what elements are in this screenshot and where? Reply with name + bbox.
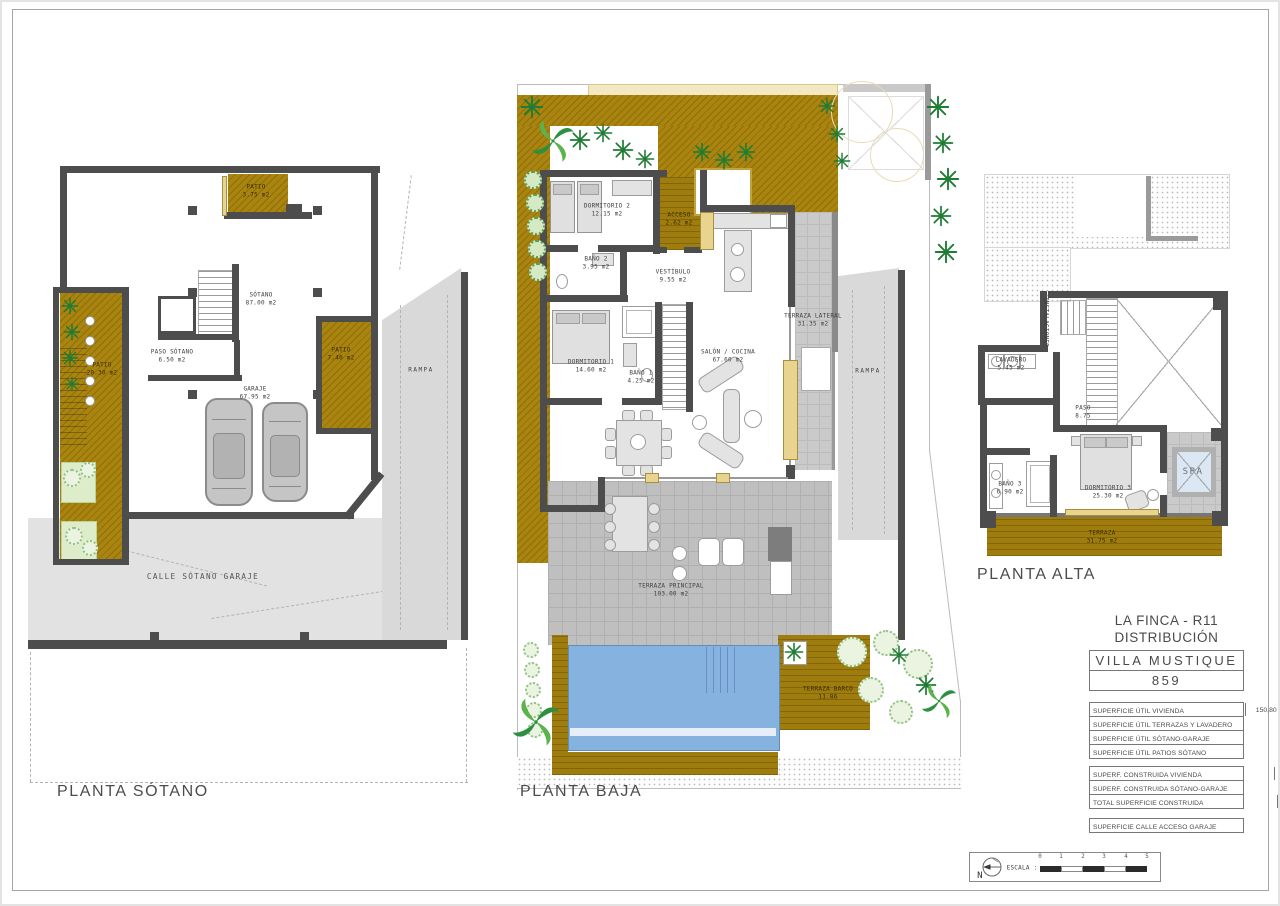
scale-segment [1126,866,1147,872]
scale-segment [1040,866,1061,872]
plant-pot-icon [85,336,95,346]
palm-tree-icon [612,139,634,161]
wall [788,205,795,307]
pouf-icon [672,546,687,561]
kitchen-island-icon [724,230,752,292]
wall [978,345,985,405]
bush-icon [529,263,547,281]
palm-tree-icon [736,142,756,162]
wall [980,405,987,517]
nightstand-icon [1071,436,1081,446]
bush-icon [837,637,867,667]
pool-deck [552,752,778,775]
palm-tree-icon [63,323,81,341]
bed-icon [552,310,610,364]
wall [148,375,242,381]
stairs [1060,300,1086,335]
chair-icon [604,539,616,551]
wall [980,448,1030,455]
room-label-patio-left: PATIO20.30 m2 [87,361,118,377]
palm-tree-icon [520,95,544,119]
sink-icon [991,470,1001,480]
row-value: 150,80 [1256,706,1277,713]
palm-tree-icon [784,642,804,662]
chair-icon [648,503,660,515]
area-table-row: SUPERFICIE ÚTIL PATIOS SÓTANO31,65 [1089,744,1244,759]
bathtub-inner-icon [1030,465,1050,503]
label-calle-sotano-garaje: CALLE SÓTANO GARAJE [147,572,259,582]
pouf-icon [672,566,687,581]
scale-tick: 2 [1081,853,1084,859]
room-label-terraza-barco: TERRAZA BARCO11.86 [803,685,853,701]
wall [700,205,795,212]
room-label-sotano: SÓTANO87.00 m2 [246,291,277,307]
pinwheel-tree-icon [920,682,958,720]
wall [1146,236,1198,241]
window [1065,509,1159,516]
palm-tree-icon [64,376,80,392]
street-boundary-wall [28,640,447,649]
palm-tree-icon [926,95,950,119]
pillar [1213,291,1228,310]
plant-pot-icon [85,376,95,386]
window [222,176,227,216]
wall [540,398,602,405]
wall [540,170,667,177]
plan-title-alta: PLANTA ALTA [977,566,1096,584]
room-label-spa: SPA [1183,466,1204,478]
cooktop-icon [730,267,745,282]
palm-tree-icon [930,205,952,227]
wall [53,287,129,293]
chair-icon [640,410,653,421]
palm-tree-icon [692,142,712,162]
stairs [662,304,688,410]
wall [655,302,662,405]
wall [316,316,322,434]
room-label-vestibulo: VESTÍBULO9.55 m2 [656,268,691,284]
wall [978,345,1048,352]
window [783,360,798,460]
bush-icon [524,662,540,678]
palm-tree-icon [889,645,909,665]
room-label-dormitorio3: DORMITORIO 325.30 m2 [1085,484,1131,500]
pillar [1211,428,1228,441]
outdoor-table-icon [612,496,648,552]
double-height-void [1116,298,1221,425]
stairs [1086,298,1118,430]
chair-icon [605,428,616,441]
wall [286,204,302,213]
bush-icon [524,171,542,189]
wall [232,264,239,342]
chair-icon [648,521,660,533]
wall [686,302,693,412]
wall [1221,291,1228,517]
bush-icon [523,642,539,658]
lounger-icon [722,538,744,566]
wall [1160,495,1167,517]
bed-icon [550,181,575,233]
room-label-dormitorio1: DORMITORIO 114.60 m2 [568,358,614,374]
area-table-row: SUPERFICIE CALLE ACCESO GARAJE77,96 [1089,818,1244,833]
plant-pot-icon [85,316,95,326]
palm-tree-icon [932,132,954,154]
stairs [198,270,234,336]
pillar [300,632,309,641]
scale-tick: 0 [1038,853,1041,859]
wall [316,428,378,434]
sink-icon [731,243,744,256]
pillar [1212,511,1228,526]
pool-steps [706,647,736,693]
title-block: LA FINCA - R11 DISTRIBUCIÓN VILLA MUSTIQ… [1089,612,1244,833]
row-label: SUPERFICIE ÚTIL VIVIENDA [1093,707,1184,714]
shower-tray-icon [626,310,652,334]
car-icon [262,402,308,502]
scale-tick: 5 [1145,853,1148,859]
room-label-paso-sotano: PASO SÓTANO6.50 m2 [151,348,193,364]
villa-name: VILLA MUSTIQUE [1089,650,1244,671]
room-label-garaje: GARAJE67.95 m2 [240,385,271,401]
pillar [188,288,197,297]
skylight [801,347,831,391]
palm-tree-icon [61,297,79,315]
wall [1146,176,1151,241]
north-compass-icon [978,855,1004,881]
roof-opening [1076,176,1146,237]
bush-icon [889,700,913,724]
chair-icon [605,446,616,459]
chair-icon [661,428,672,441]
wall [60,166,67,293]
wall [122,512,354,519]
boundary-wall [832,352,835,470]
row-label: SUPERFICIE ÚTIL TERRAZAS Y LAVADERO [1093,721,1232,728]
chair-icon [604,521,616,533]
chair-icon [661,446,672,459]
wall [653,170,660,254]
row-label: TOTAL SUPERFICIE CONSTRUIDA [1093,799,1204,806]
wall [53,559,129,565]
drawing-sheet: PATIO3.75 m2 SÓTANO87.00 m2 PASO SÓTANO6… [0,0,1280,906]
palm-tree-icon [61,349,79,367]
plant-pot-icon [85,396,95,406]
room-label-terraza-principal: TERRAZA PRINCIPAL103.00 m2 [638,582,703,598]
wall [540,295,628,302]
sheet-subtitle: DISTRIBUCIÓN [1089,629,1244,646]
chair-icon [604,503,616,515]
fridge-icon [770,214,787,228]
lounger-icon [698,538,720,566]
bush-icon [80,462,96,478]
room-label-patio-top: PATIO3.75 m2 [243,183,270,199]
ramp-wall [898,270,905,640]
row-label: SUPERF. CONSTRUIDA SÓTANO-GARAJE [1093,785,1228,792]
bush-icon [82,540,98,556]
room-label-patio-right: PATIO7.40 m2 [328,346,355,362]
scale-segment [1083,866,1104,872]
wall [1160,425,1167,473]
bush-icon [63,469,81,487]
plan-title-sotano: PLANTA SÓTANO [57,783,209,801]
room-label-bano2: BAÑO 23.95 m2 [583,255,610,271]
wardrobe-icon [612,180,652,196]
palm-tree-icon [714,150,734,170]
table-centerpiece-icon [630,434,646,450]
palm-tree-icon [934,240,958,264]
label-rampa-baja: RAMPA [855,367,881,375]
pinwheel-tree-icon [510,696,562,748]
pouf-icon [744,410,762,428]
room-label-lavadero: LAVADERO5.45 m2 [996,356,1027,372]
label-rampa-sotano: RAMPA [408,366,434,374]
scale-tick: 1 [1059,853,1062,859]
pillar [188,390,197,399]
wall [598,477,605,511]
palm-tree-icon [818,97,836,115]
glass-wall [598,477,788,479]
room-label-paso: PASO8.75 [1075,404,1090,420]
wall [598,245,657,252]
wall [158,334,239,340]
palm-tree-icon [593,123,613,143]
entry-door [700,212,714,250]
sink-icon [623,343,637,367]
wall [60,166,380,173]
palm-tree-icon [828,125,846,143]
room-label-bano3: BAÑO 36.90 m2 [997,480,1024,496]
side-table-icon [692,415,707,430]
room-label-dormitorio2: DORMITORIO 212.15 m2 [584,202,630,218]
wall [234,340,240,381]
room-label-acceso: ACCESO2.62 m2 [666,211,693,227]
elevator [158,296,196,334]
bed-icon [1080,434,1132,490]
palm-tree-icon [569,129,591,151]
villa-number: 859 [1089,670,1244,691]
scale-tick: 4 [1124,853,1127,859]
scale-tick: 3 [1102,853,1105,859]
pillar [980,511,996,528]
row-label: SUPERFICIE ÚTIL PATIOS SÓTANO [1093,749,1206,756]
wall [53,287,59,565]
row-label: SUPERFICIE ÚTIL SÓTANO-GARAJE [1093,735,1210,742]
scale-label: ESCALA : [1007,864,1038,872]
wall [224,212,312,219]
bush-icon [65,527,83,545]
wall [122,287,129,565]
ramp-wall [461,272,468,640]
wall [1053,352,1060,432]
bbq-counter-icon [768,527,792,561]
bush-icon [526,194,544,212]
room-label-instalaciones: INSTALACIONES [1042,297,1050,347]
row-label: SUPERF. CONSTRUIDA VIVIENDA [1093,771,1202,778]
sofa-icon [723,389,740,443]
pool-infinity-edge [570,728,776,736]
bush-icon [527,217,545,235]
row-label: SUPERFICIE CALLE ACCESO GARAJE [1093,823,1217,830]
wall [1048,291,1228,298]
side-table-icon [1147,489,1159,501]
wall [620,252,627,302]
palm-tree-icon [936,167,960,191]
pillar [313,390,322,399]
window [645,473,659,483]
boundary-wall [832,212,838,352]
wall [316,316,378,322]
room-label-bano1: BAÑO 14.25 m2 [628,369,655,385]
room-label-terraza-lateral: TERRAZA LATERAL31.35 m2 [784,312,842,328]
outdoor-kitchen-icon [770,561,792,595]
project-name: LA FINCA - R11 [1089,612,1244,629]
pillar [188,206,197,215]
wall [978,398,1060,405]
chair-icon [622,410,635,421]
plan-title-baja: PLANTA BAJA [520,783,642,801]
chair-icon [648,539,660,551]
pillar [313,206,322,215]
pillar [150,632,159,641]
wall [1053,425,1165,432]
palm-tree-icon [635,149,655,169]
scale-segment [1104,866,1126,872]
chair-icon [622,465,635,476]
room-label-terraza-alta: TERRAZA31.75 m2 [1087,529,1118,545]
wall [653,247,667,253]
car-icon [205,398,253,506]
toilet-icon [556,274,568,289]
bush-icon [528,240,546,258]
window [716,473,730,483]
wall [1050,455,1057,517]
palm-tree-icon [833,152,851,170]
bush-icon [858,677,884,703]
area-table-row: TOTAL SUPERFICIE CONSTRUIDA398,72 [1089,794,1244,809]
pillar [313,288,322,297]
scale-segment [1061,866,1083,872]
room-label-salon-cocina: SALÓN / COCINA67.60 m2 [701,348,755,364]
wall [540,505,605,512]
nightstand-icon [1132,436,1142,446]
